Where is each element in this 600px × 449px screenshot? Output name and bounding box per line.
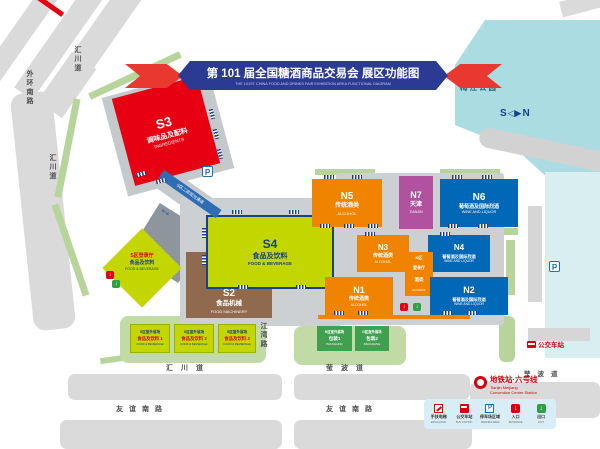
- legend-parking: P 停车场区域 PARKING AREA: [477, 404, 502, 424]
- hall-n6-en: WINE AND LIQUOR: [462, 210, 496, 215]
- gate-tick: [452, 175, 462, 179]
- hall-n1-en: ALCOHOL: [351, 303, 368, 308]
- legend-bus-station: 公交车站 BUS STATION: [452, 404, 477, 424]
- gate-tick: [352, 175, 362, 179]
- hall-s4-en: FOOD & BEVERAGE: [248, 261, 292, 267]
- exit-icon: ↓: [537, 404, 546, 413]
- exhibition-functional-map: S2 食品机械 FOOD MACHINERY S4 食品及饮料 FOOD & B…: [0, 0, 600, 449]
- title-banner: 第 101 届全国糖酒商品交易会 展区功能图 THE 101ST CHINA F…: [178, 61, 448, 90]
- gate-tick: [368, 224, 378, 228]
- s-reg-line2: 食品及饮料: [102, 260, 182, 267]
- gate-tick: [358, 311, 368, 315]
- hall-n6: N6 葡萄酒及国际烈酒 WINE AND LIQUOR: [440, 179, 518, 227]
- legend-entrance-zh: 入口: [512, 414, 520, 420]
- legend-escalator-en: ESCALATOR: [431, 420, 446, 424]
- outdoor-n2-line2: 包装2: [366, 336, 378, 343]
- road-label-waihuan: 外环南路: [24, 70, 34, 106]
- legend-escalator: 手扶电梯 ESCALATOR: [426, 404, 451, 424]
- metro-logo-icon: [474, 376, 487, 389]
- hall-n5: N5 传统酒类 ALCOHOL: [312, 179, 382, 227]
- road-label-huichuan-top: 汇川道: [72, 46, 82, 73]
- road-bottom-2a: [60, 420, 282, 449]
- road-bottom-1b: [294, 374, 470, 400]
- parking-icon: P: [549, 261, 560, 272]
- gate-tick: [482, 175, 492, 179]
- hall-n3-code: N3: [378, 243, 388, 253]
- hall-s2-en: FOOD MACHINERY: [211, 309, 248, 314]
- road-bottom-1a: [68, 374, 282, 400]
- n-reg-line2: 登录厅: [413, 265, 425, 270]
- outdoor-n1-line2: 包装1: [329, 336, 341, 343]
- hall-n3: N3 传统酒类 ALCOHOL: [357, 235, 409, 272]
- parking-icon: P: [485, 404, 494, 413]
- outdoor-s2-line2: 食品及饮料 2: [181, 336, 207, 343]
- hall-n3-en: ALCOHOL: [375, 260, 392, 265]
- n-reg-line1: N区: [416, 255, 423, 260]
- outdoor-n2-line3: PACKAGING: [364, 342, 380, 346]
- banner-title-en: THE 101ST CHINA FOOD AND DRINKS FAIR EXH…: [235, 82, 391, 86]
- road-label-yingbo-bottom: 莹波道: [326, 363, 371, 373]
- parking-icon: P: [202, 166, 213, 177]
- hall-n5-en: ALCOHOL: [337, 211, 356, 216]
- exit-icon: ↓: [112, 280, 120, 288]
- hall-n2-en: WINE AND LIQUOR: [454, 302, 484, 306]
- road-west: [10, 90, 77, 331]
- outdoor-n1-line3: PACKAGING: [326, 342, 342, 346]
- gate-tick: [202, 228, 206, 238]
- hall-n4: N4 葡萄酒及国际烈酒 WINE AND LIQUOR: [428, 235, 490, 272]
- road-label-huichuan-bottom: 汇川道: [166, 363, 211, 373]
- gate-tick: [238, 285, 248, 289]
- outdoor-n1: N区室外展场 包装1 PACKAGING: [317, 326, 352, 351]
- legend-escalator-zh: 手扶电梯: [431, 414, 447, 420]
- bus-stop-marker: 公交车站: [527, 339, 564, 349]
- bus-icon: [460, 404, 469, 413]
- gate-tick: [440, 232, 450, 236]
- s-reg-line1: S区登录厅: [102, 253, 182, 260]
- hall-s2-zh: 食品机械: [216, 300, 242, 308]
- banner-title-zh: 第 101 届全国糖酒商品交易会 展区功能图: [207, 65, 420, 81]
- escalator-icon: [434, 404, 443, 413]
- legend-exit-en: EXIT: [538, 420, 544, 424]
- gate-tick: [448, 224, 458, 228]
- entrance-icon: ↓: [400, 303, 408, 311]
- hall-s2-code: S2: [223, 287, 235, 300]
- hall-n4-code: N4: [454, 243, 464, 253]
- gate-tick: [296, 285, 306, 289]
- hall-n6-code: N6: [473, 191, 486, 204]
- metro-station-en2: Convention Center Station: [490, 390, 538, 395]
- gate-tick: [467, 311, 477, 315]
- gate-tick: [289, 210, 299, 214]
- compass-arrow-icon: ◁▶: [508, 108, 522, 119]
- outdoor-s1-line3: FOOD & BEVERAGE: [137, 342, 164, 346]
- road-label-youyi-right: 友谊南路: [326, 404, 378, 414]
- hall-n7-zh: 天津: [410, 202, 422, 210]
- hall-n1-code: N1: [353, 285, 365, 297]
- legend-entrance: ↓ 入口 ENTRANCE: [503, 404, 528, 424]
- gate-tick: [442, 311, 452, 315]
- legend-entrance-en: ENTRANCE: [509, 420, 523, 424]
- hall-n5-code: N5: [341, 190, 354, 203]
- bus-icon: [527, 341, 536, 348]
- s-registration-label: S区登录厅 食品及饮料 FOOD & BEVERAGE: [102, 253, 182, 272]
- compass-north-label: N: [523, 108, 530, 119]
- gate-tick: [232, 210, 242, 214]
- hall-n1: N1 传统酒类 ALCOHOL: [325, 277, 393, 315]
- gate-tick: [334, 311, 344, 315]
- outdoor-s3-line3: FOOD & BEVERAGE: [224, 342, 251, 346]
- outdoor-s2: S区室外展场 食品及饮料 2 FOOD & BEVERAGE: [174, 324, 214, 353]
- hall-s4-code: S4: [263, 237, 278, 253]
- hall-n2: N2 葡萄酒及国际烈酒 WINE AND LIQUOR: [430, 277, 508, 315]
- n-reg-line3: 酒类: [415, 277, 424, 283]
- hall-n7: N7 天津 TIANJIN: [399, 176, 433, 229]
- outdoor-s1: S区室外展场 食品及饮料 1 FOOD & BEVERAGE: [130, 324, 170, 353]
- hall-s4-zh: 食品及饮料: [253, 252, 288, 261]
- road-label-youyi-left: 友谊南路: [116, 404, 168, 414]
- legend-bus-zh: 公交车站: [456, 414, 472, 420]
- gate-tick: [344, 224, 354, 228]
- s-reg-line3: FOOD & BEVERAGE: [102, 267, 182, 272]
- gate-tick: [320, 224, 330, 228]
- hall-n7-code: N7: [410, 190, 422, 202]
- outdoor-s3-line2: 食品及饮料 3: [224, 336, 250, 343]
- metro-line-label: 地铁站·六号线: [490, 375, 538, 385]
- legend-bus-en: BUS STATION: [456, 420, 472, 424]
- legend-parking-zh: 停车场区域: [480, 414, 500, 420]
- hall-n2-code: N2: [463, 285, 475, 297]
- exit-icon: ↓: [413, 303, 421, 311]
- hall-n4-en: WINE AND LIQUOR: [444, 259, 474, 263]
- hall-n7-en: TIANJIN: [409, 210, 422, 215]
- gate-tick: [365, 232, 375, 236]
- road-topright-sliver: [559, 0, 600, 17]
- compass: S ◁▶ N: [500, 108, 530, 119]
- compass-south-label: S: [500, 108, 507, 119]
- legend-exit-zh: 出口: [537, 414, 545, 420]
- road-label-huichuan-mid: 汇川道: [47, 154, 57, 181]
- n-reg-line4: ALCOHOL: [412, 289, 426, 293]
- sidewalk-east-vertical: [528, 206, 542, 302]
- hall-n5-zh: 传统酒类: [335, 203, 359, 211]
- legend-parking-en: PARKING AREA: [481, 420, 500, 424]
- legend-exit: ↓ 出口 EXIT: [529, 404, 554, 424]
- entrance-icon: ↓: [511, 404, 520, 413]
- entrance-icon: ↓: [106, 271, 114, 279]
- outdoor-s1-line2: 食品及饮料 1: [137, 336, 163, 343]
- outdoor-n2: N区室外展场 包装2 PACKAGING: [355, 326, 389, 351]
- metro-station-marker: 地铁站·六号线 Tianjin Meijiang Convention Cent…: [474, 375, 538, 395]
- outdoor-s3: S区室外展场 食品及饮料 3 FOOD & BEVERAGE: [218, 324, 256, 353]
- n-halls-south-wall: [318, 315, 470, 319]
- legend-bar: 手扶电梯 ESCALATOR 公交车站 BUS STATION P 停车场区域 …: [424, 399, 556, 429]
- bus-stop-label: 公交车站: [538, 339, 564, 349]
- outdoor-s2-line3: FOOD & BEVERAGE: [181, 342, 208, 346]
- gate-tick: [202, 255, 206, 265]
- n-registration-hall: N区 登录厅 酒类 ALCOHOL: [405, 252, 433, 296]
- gate-tick: [478, 224, 488, 228]
- road-label-jiangwan: 江湾路: [258, 322, 268, 349]
- gate-tick: [324, 175, 334, 179]
